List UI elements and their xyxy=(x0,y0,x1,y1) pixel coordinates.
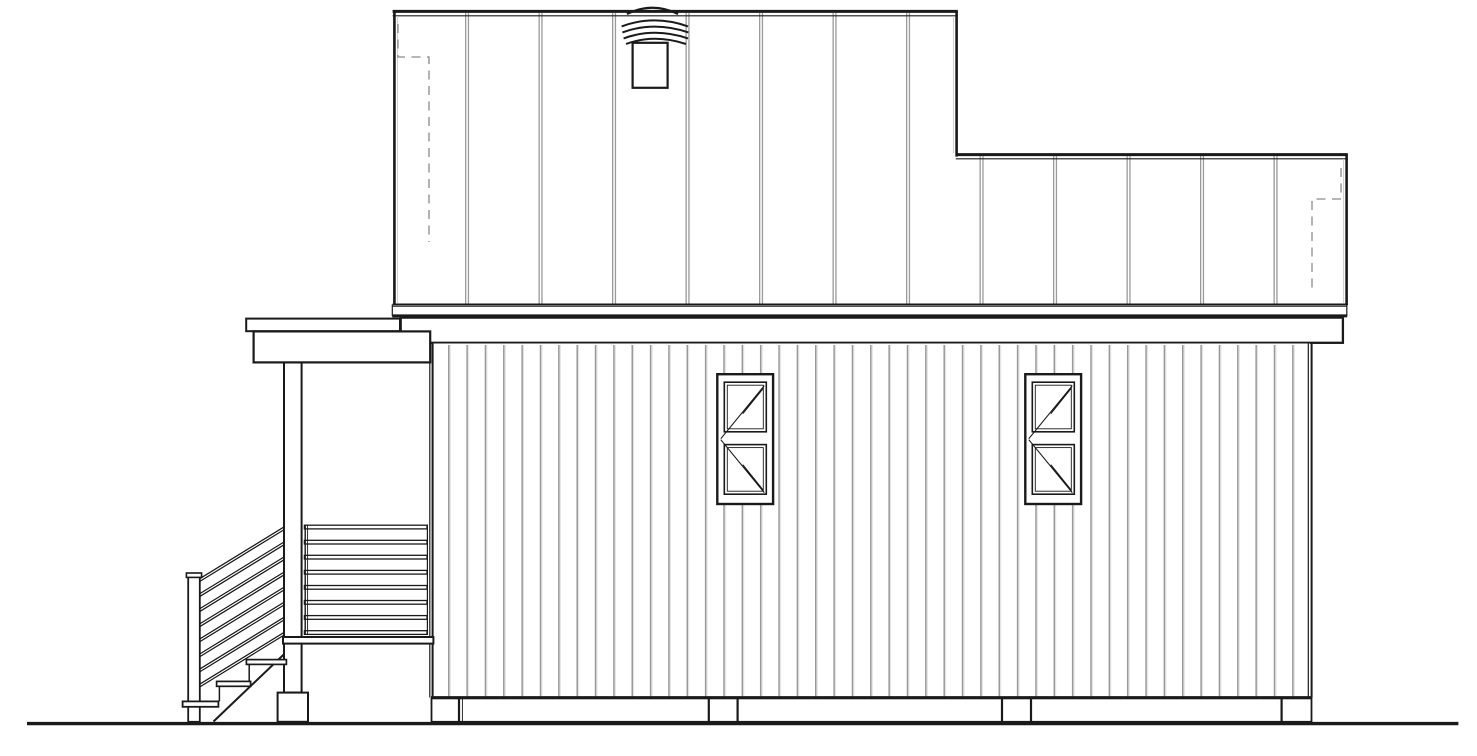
window-left xyxy=(717,374,773,504)
house-side-elevation xyxy=(0,0,1477,756)
porch-beam xyxy=(254,331,431,362)
porch-floor-edge xyxy=(283,637,433,644)
lower-story-wall xyxy=(430,343,1312,698)
newel-base-plate xyxy=(183,701,219,706)
porch-horizontal-rails xyxy=(304,525,427,636)
vertical-siding xyxy=(441,345,1302,697)
porch xyxy=(278,363,434,722)
elevation-drawing-canvas xyxy=(0,0,1477,756)
window-frame xyxy=(1025,374,1081,504)
newel-post xyxy=(188,577,200,722)
vent-box xyxy=(633,43,668,88)
upper-story-left-section xyxy=(393,10,958,305)
story-break-trim xyxy=(392,304,1348,342)
stair-tread xyxy=(217,681,251,686)
band-board xyxy=(401,318,1343,343)
upper-story-right-section xyxy=(956,154,1348,305)
window-frame xyxy=(717,374,773,504)
window-right xyxy=(1025,374,1081,504)
board-and-batten-siding xyxy=(958,156,1347,304)
newel-cap xyxy=(186,573,201,577)
stairs xyxy=(183,527,287,722)
board-and-batten-siding xyxy=(395,13,957,304)
stair-tread xyxy=(246,660,286,665)
post-footing xyxy=(278,693,308,722)
porch-roof-slab xyxy=(246,319,400,332)
foundation-skirt xyxy=(432,698,1312,721)
